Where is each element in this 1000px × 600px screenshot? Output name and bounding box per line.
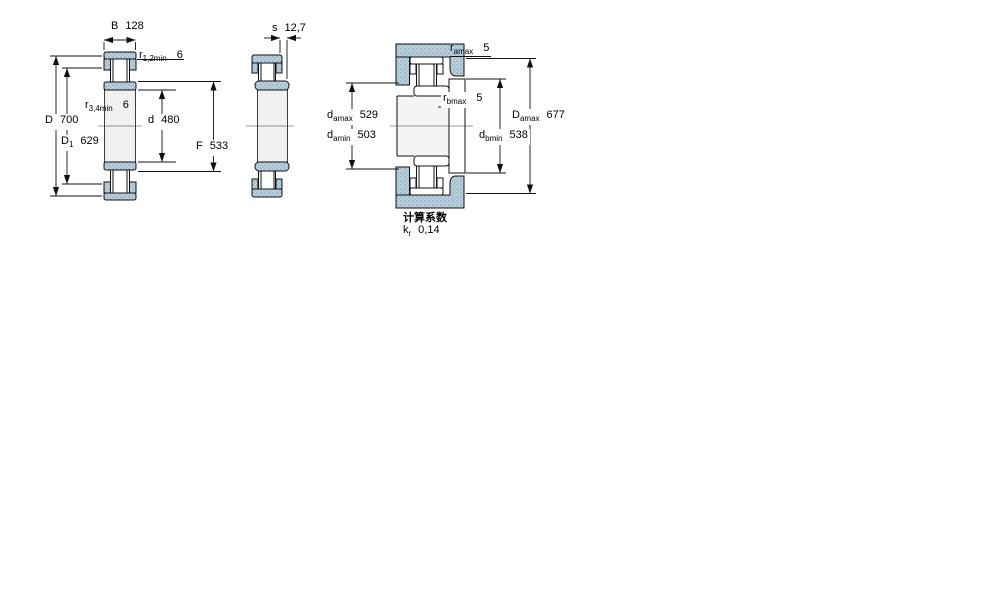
right-view-mounting [346, 44, 536, 208]
dim-label-kr: kr0,14 [403, 224, 440, 240]
middle-bottom-section [252, 162, 289, 197]
calc-factor-heading: 计算系数 [403, 209, 447, 225]
dim-label-D1: D1629 [59, 135, 101, 151]
left-bottom-section [104, 162, 136, 200]
dim-label-ramax: ramax5 [450, 42, 489, 58]
left-abutment-top [396, 57, 410, 85]
middle-view [246, 38, 301, 197]
dim-label-damin: damin503 [325, 129, 378, 145]
dim-label-damax: damax529 [325, 109, 380, 125]
dim-label-B: B128 [111, 20, 144, 36]
dim-label-F: F533 [194, 140, 230, 156]
dim-label-r34min: r3,4min6 [85, 99, 129, 115]
dim-label-r12min: r1,2min6 [139, 49, 183, 65]
left-abutment-bottom [396, 167, 410, 195]
left-top-section [104, 52, 136, 90]
dim-label-d: d480 [146, 114, 181, 130]
dim-label-s: s12,7 [272, 22, 306, 38]
dim-label-D: D700 [43, 114, 80, 130]
dim-label-Damax: Damax677 [510, 109, 567, 125]
dim-label-dbmin: dbmin538 [477, 129, 530, 145]
right-top-section [410, 57, 449, 96]
dim-label-rbmax: rbmax5 [441, 92, 484, 108]
bearing-dimension-drawing: B128 r1,2min6 r3,4min6 D700 D1629 d480 F… [0, 0, 1000, 600]
middle-top-section [252, 55, 289, 90]
drawing-canvas [0, 0, 1000, 600]
right-bottom-section [410, 156, 449, 195]
dim-B-lines [104, 40, 136, 50]
